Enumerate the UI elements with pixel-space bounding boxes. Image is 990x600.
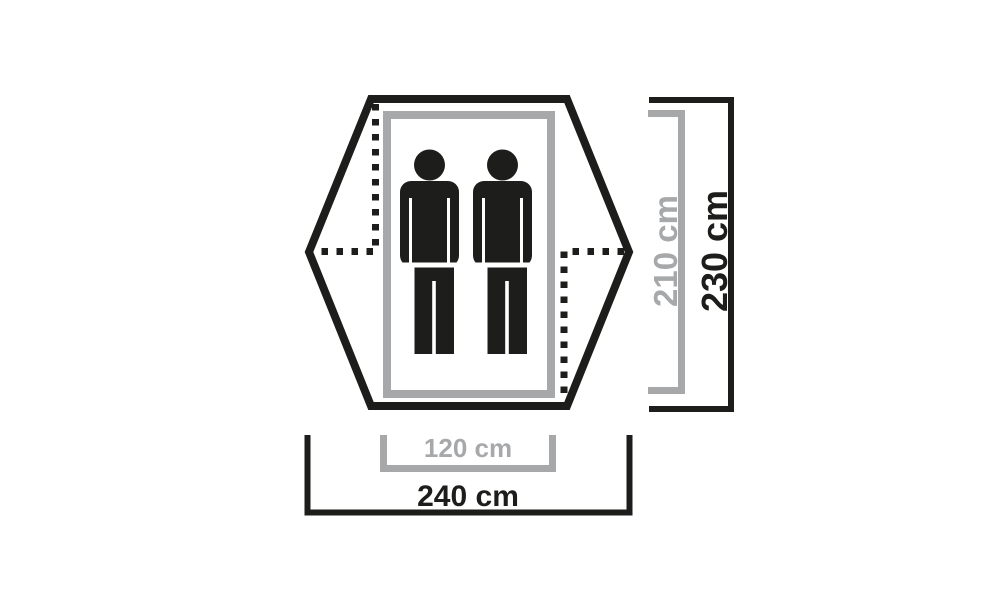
inner-length-label: 210 cm <box>647 195 684 307</box>
tent-floorplan-diagram: 210 cm 230 cm 120 cm 240 cm <box>0 0 990 600</box>
inner-width-label: 120 cm <box>424 433 512 463</box>
diagram-canvas: 210 cm 230 cm 120 cm 240 cm <box>0 0 990 600</box>
outer-length-label: 230 cm <box>694 190 735 312</box>
outer-width-label: 240 cm <box>417 480 519 513</box>
